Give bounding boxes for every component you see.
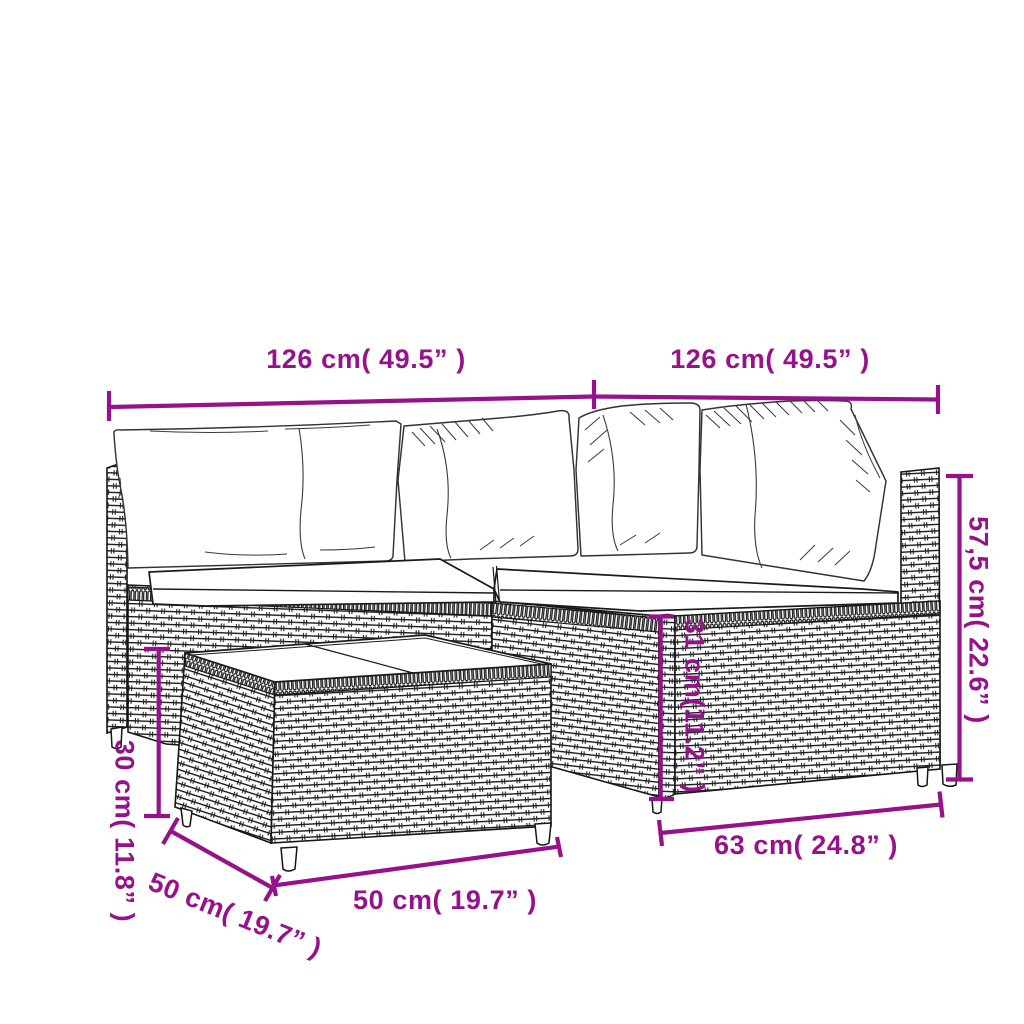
svg-text:31 cm(11.2” ): 31 cm(11.2” ) <box>680 619 710 793</box>
svg-text:57,5 cm( 22.6” ): 57,5 cm( 22.6” ) <box>964 516 994 724</box>
svg-text:63 cm( 24.8” ): 63 cm( 24.8” ) <box>714 830 898 860</box>
svg-text:126 cm( 49.5” ): 126 cm( 49.5” ) <box>670 344 870 374</box>
svg-text:126 cm( 49.5” ): 126 cm( 49.5” ) <box>266 344 466 374</box>
svg-text:50 cm( 19.7” ): 50 cm( 19.7” ) <box>353 885 537 915</box>
svg-text:30 cm( 11.8” ): 30 cm( 11.8” ) <box>110 740 140 923</box>
